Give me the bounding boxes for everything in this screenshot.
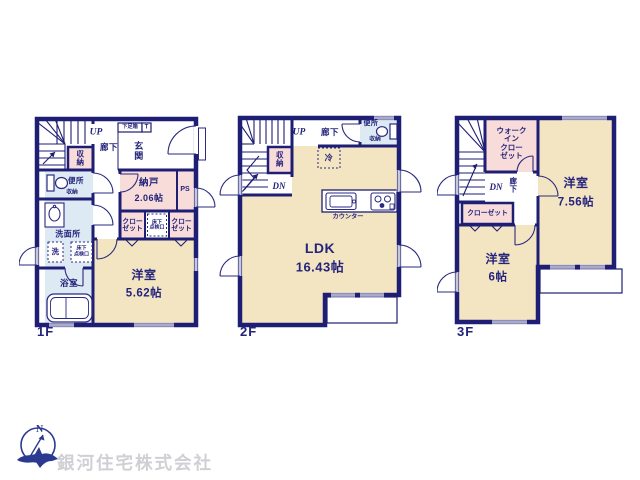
balcony-2f bbox=[327, 297, 397, 323]
label-toilet-1f: 便所 bbox=[68, 177, 84, 185]
label-stair-storage-1f: 収 納 bbox=[77, 150, 85, 167]
label-storeroom-size: 2.06帖 bbox=[134, 192, 163, 202]
label-storeroom: 納戸 bbox=[139, 179, 159, 190]
label-stair-storage-2f: 収 納 bbox=[276, 152, 284, 169]
floorplan-2f: UP DN 収 納 廊下 便所 収納 冷 カウンター LDK 16.43帖 2F bbox=[214, 104, 432, 354]
floor-tag-1f: 1F bbox=[37, 324, 54, 339]
label-counter: カウンター bbox=[333, 214, 364, 221]
label-bath: 浴室 bbox=[60, 279, 78, 289]
washbasin-fixture-1f bbox=[45, 203, 64, 227]
label-wic: ウォーク イン クロー ゼット bbox=[497, 127, 527, 161]
label-entrance: 玄 関 bbox=[134, 141, 144, 161]
label-washer: 洗 bbox=[52, 248, 60, 256]
label-closet-right-1f: クロー ゼット bbox=[171, 218, 191, 233]
label-floor-hatch-wash: 床下 点検口 bbox=[74, 246, 89, 257]
label-dn-3f: DN bbox=[490, 182, 503, 192]
label-washroom: 洗面所 bbox=[55, 229, 81, 238]
label-up-2f: UP bbox=[293, 128, 306, 139]
floorplan-3f: ウォーク イン クロー ゼット DN 廊 下 クローゼット 洋室 7.56帖 洋… bbox=[437, 104, 637, 354]
label-bedroom-1f: 洋室 bbox=[131, 269, 156, 283]
bird-silhouette-icon bbox=[17, 447, 58, 468]
label-pipe-space: PS bbox=[180, 186, 189, 194]
label-bedroom-b: 洋室 bbox=[485, 253, 510, 267]
north-label: N bbox=[36, 424, 43, 435]
label-floor-hatch-closet: 床下 点検口 bbox=[149, 220, 164, 231]
label-closet-left-1f: クロー ゼット bbox=[122, 218, 142, 233]
label-closet-3f: クローゼット bbox=[467, 210, 508, 218]
label-toilet-storage-2f: 収納 bbox=[369, 137, 381, 144]
stairs-arrow-3f bbox=[472, 164, 477, 169]
room-bedroom-a-3f bbox=[538, 118, 614, 267]
label-hallway-1f: 廊下 bbox=[100, 143, 118, 153]
kitchen-counter bbox=[322, 190, 397, 212]
label-fridge: 冷 bbox=[325, 153, 334, 162]
stairs-3f bbox=[457, 118, 485, 196]
floorplan-canvas: UP 廊下 下足箱 T 玄 関 収 納 便所 収納 納戸 2.06帖 PS クロ… bbox=[0, 0, 640, 480]
label-shoe-box: 下足箱 bbox=[122, 125, 138, 131]
label-hallway-3f: 廊 下 bbox=[510, 178, 518, 195]
floorplan-3f-drawing bbox=[437, 104, 637, 354]
balcony-3f bbox=[540, 269, 622, 293]
floorplan-1f: UP 廊下 下足箱 T 玄 関 収 納 便所 収納 納戸 2.06帖 PS クロ… bbox=[19, 104, 225, 354]
label-shoe-box-t: T bbox=[145, 124, 149, 131]
label-bedroom-b-size: 6帖 bbox=[489, 272, 508, 285]
label-toilet-2f: 便所 bbox=[364, 120, 379, 128]
label-bedroom-a: 洋室 bbox=[563, 177, 588, 191]
label-bedroom-a-size: 7.56帖 bbox=[558, 197, 594, 210]
company-name: 銀河住宅株式会社 bbox=[57, 450, 213, 475]
floor-tag-3f: 3F bbox=[457, 324, 474, 339]
label-bedroom-1f-size: 5.62帖 bbox=[126, 288, 162, 301]
label-hallway-2f: 廊下 bbox=[321, 128, 339, 138]
floorplan-2f-drawing bbox=[214, 104, 432, 354]
bathtub-fixture-1f bbox=[47, 294, 92, 322]
porch-step-1f bbox=[199, 128, 206, 160]
label-dn-2f: DN bbox=[273, 181, 286, 191]
label-ldk-size: 16.43帖 bbox=[296, 261, 345, 276]
label-up-1f: UP bbox=[90, 128, 103, 139]
label-toilet-storage-1f: 収納 bbox=[66, 189, 78, 196]
floor-tag-2f: 2F bbox=[240, 324, 257, 339]
label-ldk: LDK bbox=[305, 241, 335, 257]
